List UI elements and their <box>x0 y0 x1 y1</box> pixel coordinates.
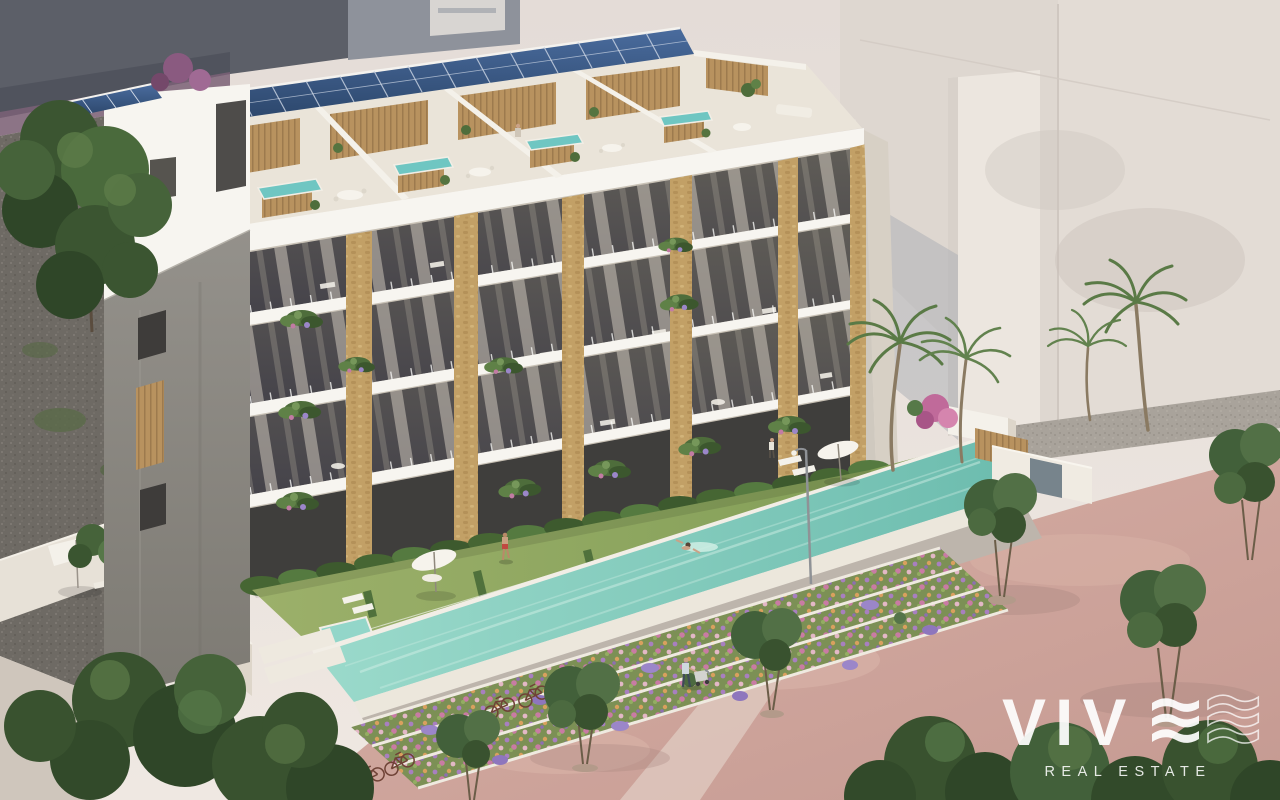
render-image: VIV REAL ESTATE <box>0 0 1280 800</box>
rooftop-person-body <box>515 128 521 137</box>
rooftop-person <box>516 124 520 128</box>
wave-e-icon <box>1152 698 1199 743</box>
watermark-tagline: REAL ESTATE <box>1044 764 1211 780</box>
scene-render: VIV REAL ESTATE <box>0 0 1280 800</box>
ghost-buildings <box>840 0 1280 440</box>
watermark-brand-text: VIV <box>1002 685 1135 759</box>
tower-windows <box>136 310 166 531</box>
